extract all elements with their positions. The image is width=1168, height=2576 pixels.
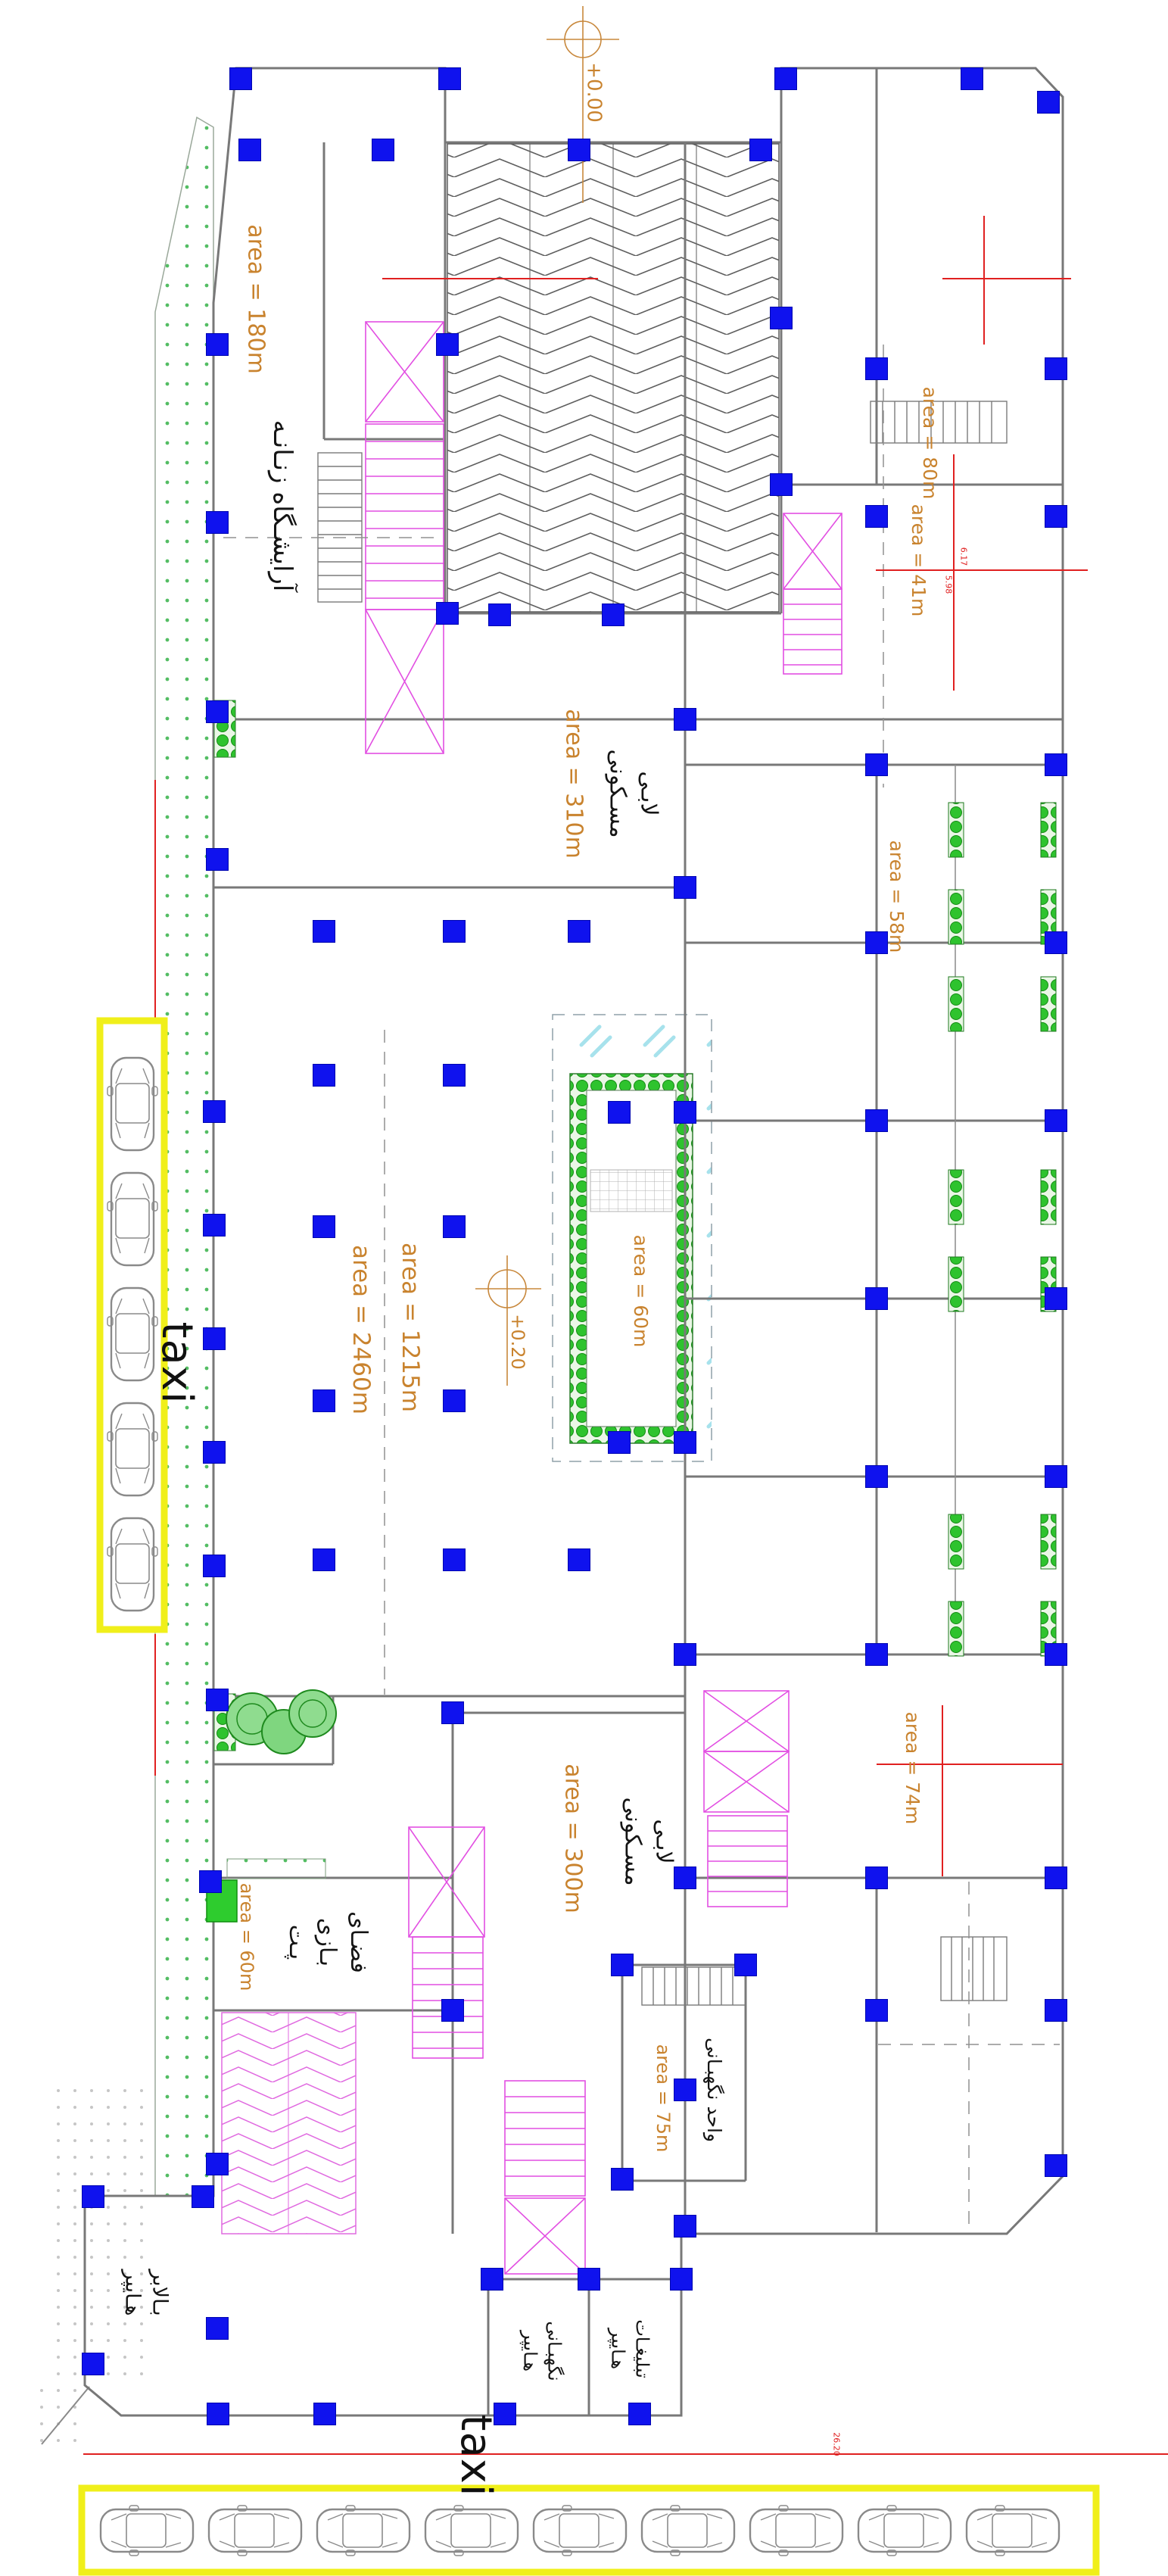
ground-dots-corner [30,2378,83,2444]
taxi-car [858,2506,951,2556]
plan-drawing [0,0,1168,2576]
taxi-car [750,2506,843,2556]
taxi-car [107,1173,157,1265]
courtyard-pergola [590,1170,672,1212]
taxi-car [425,2506,518,2556]
taxi-car [534,2506,626,2556]
taxi-car [107,1403,157,1495]
taxi-car [107,1288,157,1380]
level-marker-mid [475,1255,541,1386]
taxi-car [209,2506,301,2556]
taxi-car [642,2506,734,2556]
floor-plan-sheet: +0.00 +0.20 area = 180m آرایشـگاه زنـانـ… [0,0,1168,2576]
ground-dots-bottom-left [44,2079,155,2381]
taxi-car [107,1518,157,1611]
taxi-car [967,2506,1059,2556]
taxi-car [317,2506,410,2556]
taxi-car [101,2506,193,2556]
taxi-car [107,1058,157,1150]
